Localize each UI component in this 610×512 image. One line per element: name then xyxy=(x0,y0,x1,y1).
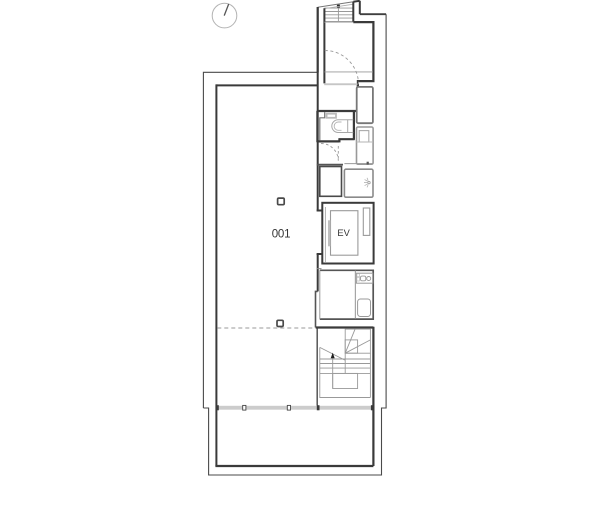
svg-text:001: 001 xyxy=(272,228,291,240)
svg-text:EV: EV xyxy=(337,228,350,238)
